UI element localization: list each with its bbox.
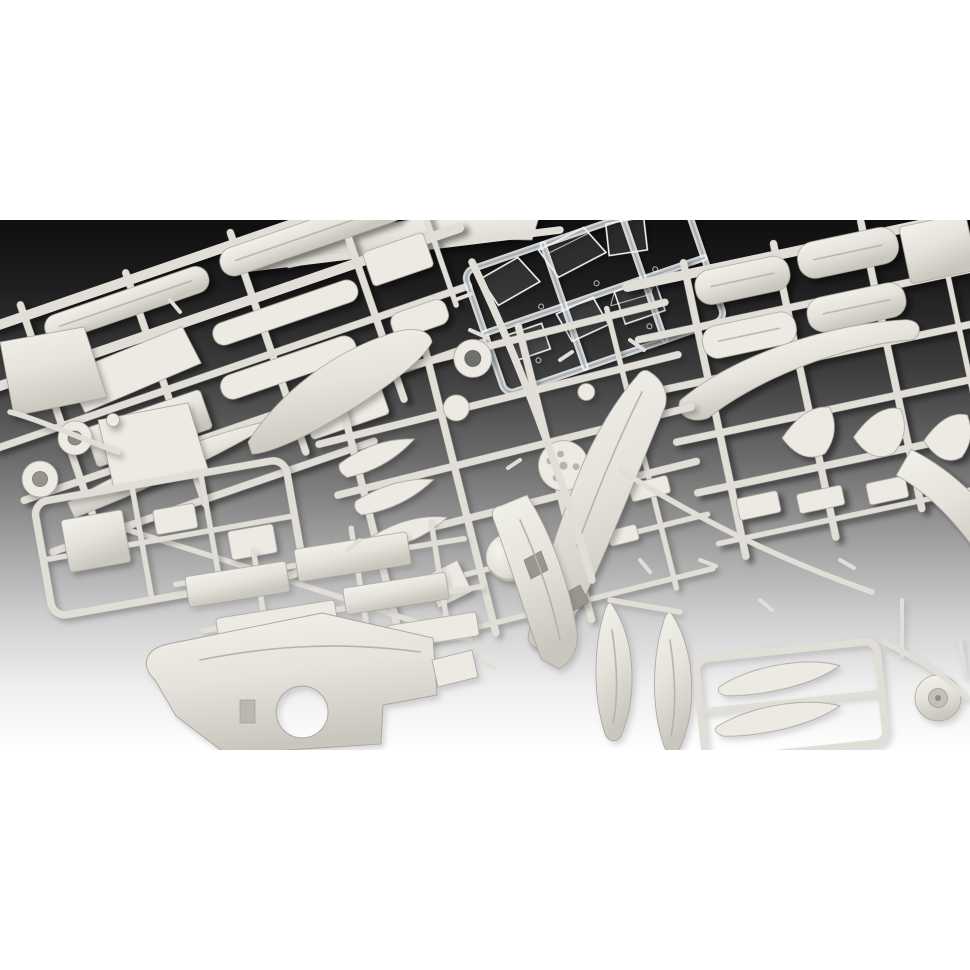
square-panel-part <box>61 510 131 573</box>
product-photo <box>0 0 970 970</box>
photo-canvas <box>0 0 970 970</box>
photo-area <box>0 158 970 761</box>
wheel-tyre-part <box>22 461 58 497</box>
small-disc-part <box>107 414 120 427</box>
wing-slot <box>240 700 255 723</box>
